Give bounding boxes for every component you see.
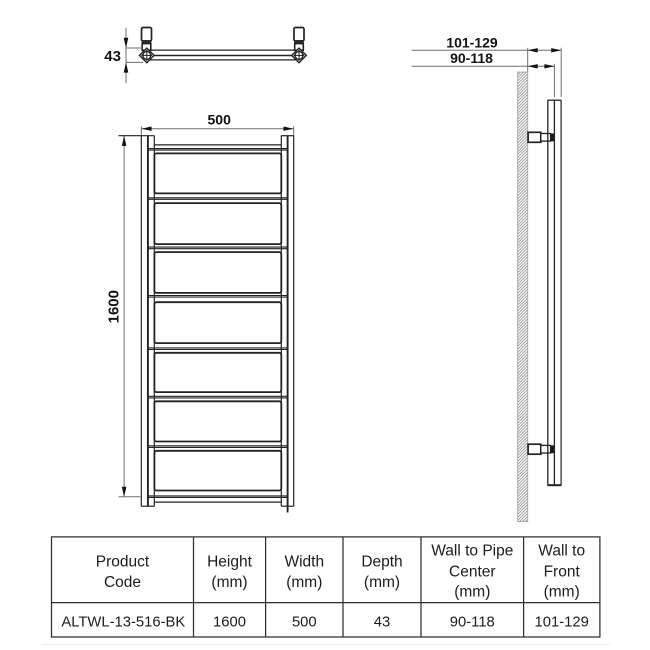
svg-text:(mm): (mm) — [544, 584, 580, 601]
svg-text:Code: Code — [104, 574, 141, 591]
svg-text:101-129: 101-129 — [535, 615, 589, 631]
svg-text:(mm): (mm) — [364, 574, 400, 591]
svg-text:ALTWL-13-516-BK: ALTWL-13-516-BK — [61, 615, 185, 631]
svg-text:(mm): (mm) — [211, 574, 247, 591]
svg-text:1600: 1600 — [106, 290, 123, 323]
svg-text:(mm): (mm) — [286, 574, 322, 591]
svg-text:Wall to Pipe: Wall to Pipe — [431, 543, 513, 560]
svg-text:(mm): (mm) — [454, 584, 490, 601]
svg-text:Front: Front — [544, 564, 581, 581]
svg-text:Center: Center — [449, 564, 496, 581]
svg-text:500: 500 — [208, 111, 232, 127]
svg-text:Wall to: Wall to — [538, 543, 585, 560]
svg-text:43: 43 — [374, 615, 390, 631]
svg-text:Depth: Depth — [361, 554, 402, 571]
svg-text:90-118: 90-118 — [450, 615, 495, 631]
svg-text:101-129: 101-129 — [446, 35, 498, 51]
svg-text:500: 500 — [292, 615, 317, 631]
svg-text:43: 43 — [104, 48, 121, 65]
svg-text:Width: Width — [284, 554, 324, 571]
svg-text:90-118: 90-118 — [450, 50, 493, 66]
svg-text:Product: Product — [96, 554, 150, 571]
svg-text:Height: Height — [207, 554, 252, 571]
svg-text:1600: 1600 — [213, 615, 246, 631]
